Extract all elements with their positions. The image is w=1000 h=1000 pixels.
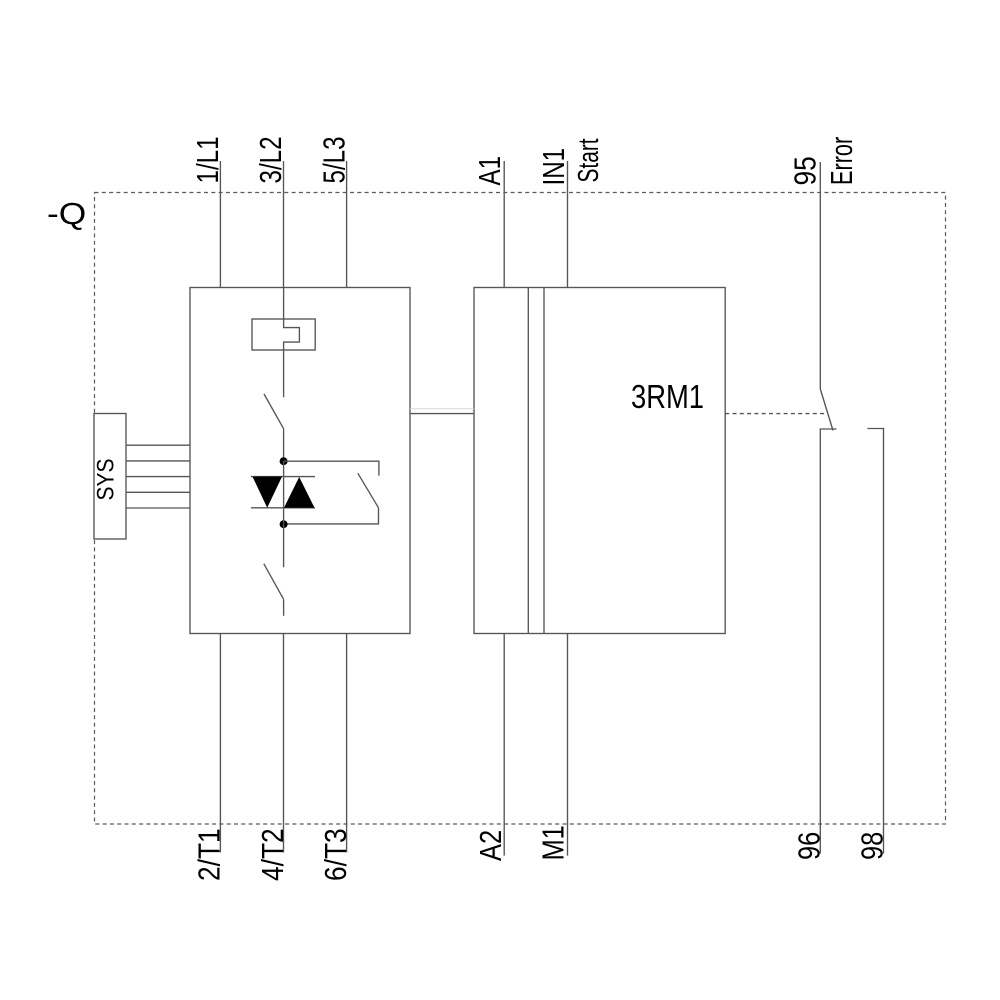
svg-text:Start: Start — [573, 138, 605, 182]
svg-text:A2: A2 — [474, 830, 509, 861]
svg-text:-Q: -Q — [47, 197, 86, 232]
svg-text:3/L2: 3/L2 — [253, 136, 288, 183]
svg-text:95: 95 — [789, 156, 823, 185]
svg-text:3RM1: 3RM1 — [631, 380, 704, 416]
svg-text:98: 98 — [855, 832, 890, 860]
svg-text:5/L3: 5/L3 — [317, 136, 352, 183]
svg-text:Error: Error — [824, 137, 859, 185]
svg-text:A1: A1 — [472, 156, 507, 186]
svg-text:4/T2: 4/T2 — [256, 828, 290, 881]
svg-text:M1: M1 — [536, 825, 571, 860]
svg-text:2/T1: 2/T1 — [193, 828, 227, 881]
svg-text:SYS: SYS — [92, 459, 119, 501]
svg-text:96: 96 — [792, 832, 827, 860]
svg-text:IN1: IN1 — [536, 148, 571, 186]
svg-text:1/L1: 1/L1 — [190, 136, 225, 183]
svg-text:6/T3: 6/T3 — [319, 828, 353, 881]
